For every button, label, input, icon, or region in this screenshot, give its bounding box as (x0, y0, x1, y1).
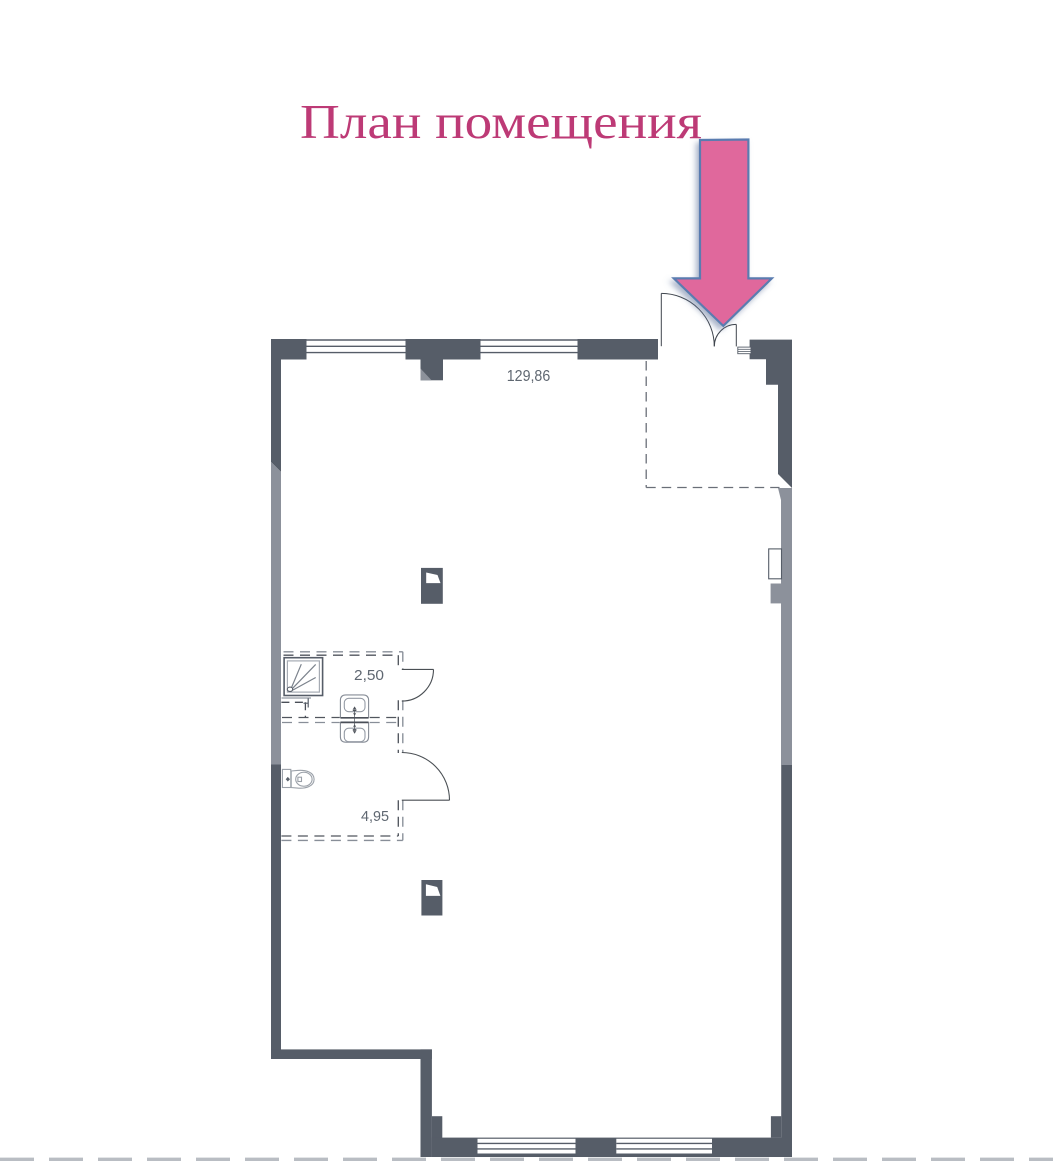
svg-text:4,95: 4,95 (361, 809, 389, 825)
svg-text:129,86: 129,86 (507, 368, 551, 385)
svg-text:2,50: 2,50 (354, 667, 384, 684)
svg-text:План помещения: План помещения (300, 94, 702, 149)
